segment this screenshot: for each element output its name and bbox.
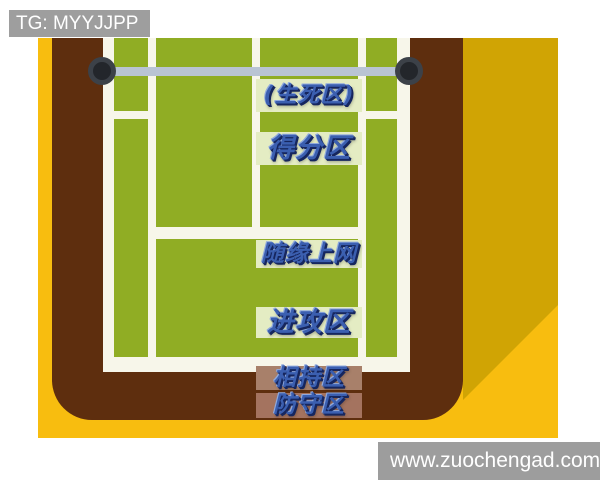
zone-label-life-death: (生死区)	[256, 79, 362, 112]
zone-label-approach-net: 随缘上网	[256, 240, 362, 268]
net-bar	[102, 67, 414, 76]
singles-sideline-left	[148, 38, 156, 372]
net-post-right-icon	[395, 57, 423, 85]
zone-label-scoring: 得分区	[256, 132, 362, 165]
court-surround-out-of-bounds: (生死区) 得分区 随缘上网 进攻区 相持区 防守区	[52, 38, 463, 420]
court-diagram-picture: (生死区) 得分区 随缘上网 进攻区 相持区 防守区	[38, 38, 558, 438]
zone-label-defense: 防守区	[256, 393, 362, 418]
website-bar: www.zuochengad.com	[378, 442, 600, 480]
alley-mark-left	[103, 111, 156, 119]
alley-mark-right	[358, 111, 410, 119]
court-green-area: (生死区) 得分区 随缘上网 进攻区	[103, 38, 410, 372]
doubles-sideline-right	[397, 38, 410, 372]
zone-label-rally: 相持区	[256, 366, 362, 390]
watermark-badge: TG: MYYJJPP	[9, 10, 150, 37]
net-post-left-icon	[88, 57, 116, 85]
doubles-sideline-left	[103, 38, 114, 372]
zone-label-attack: 进攻区	[256, 307, 362, 338]
